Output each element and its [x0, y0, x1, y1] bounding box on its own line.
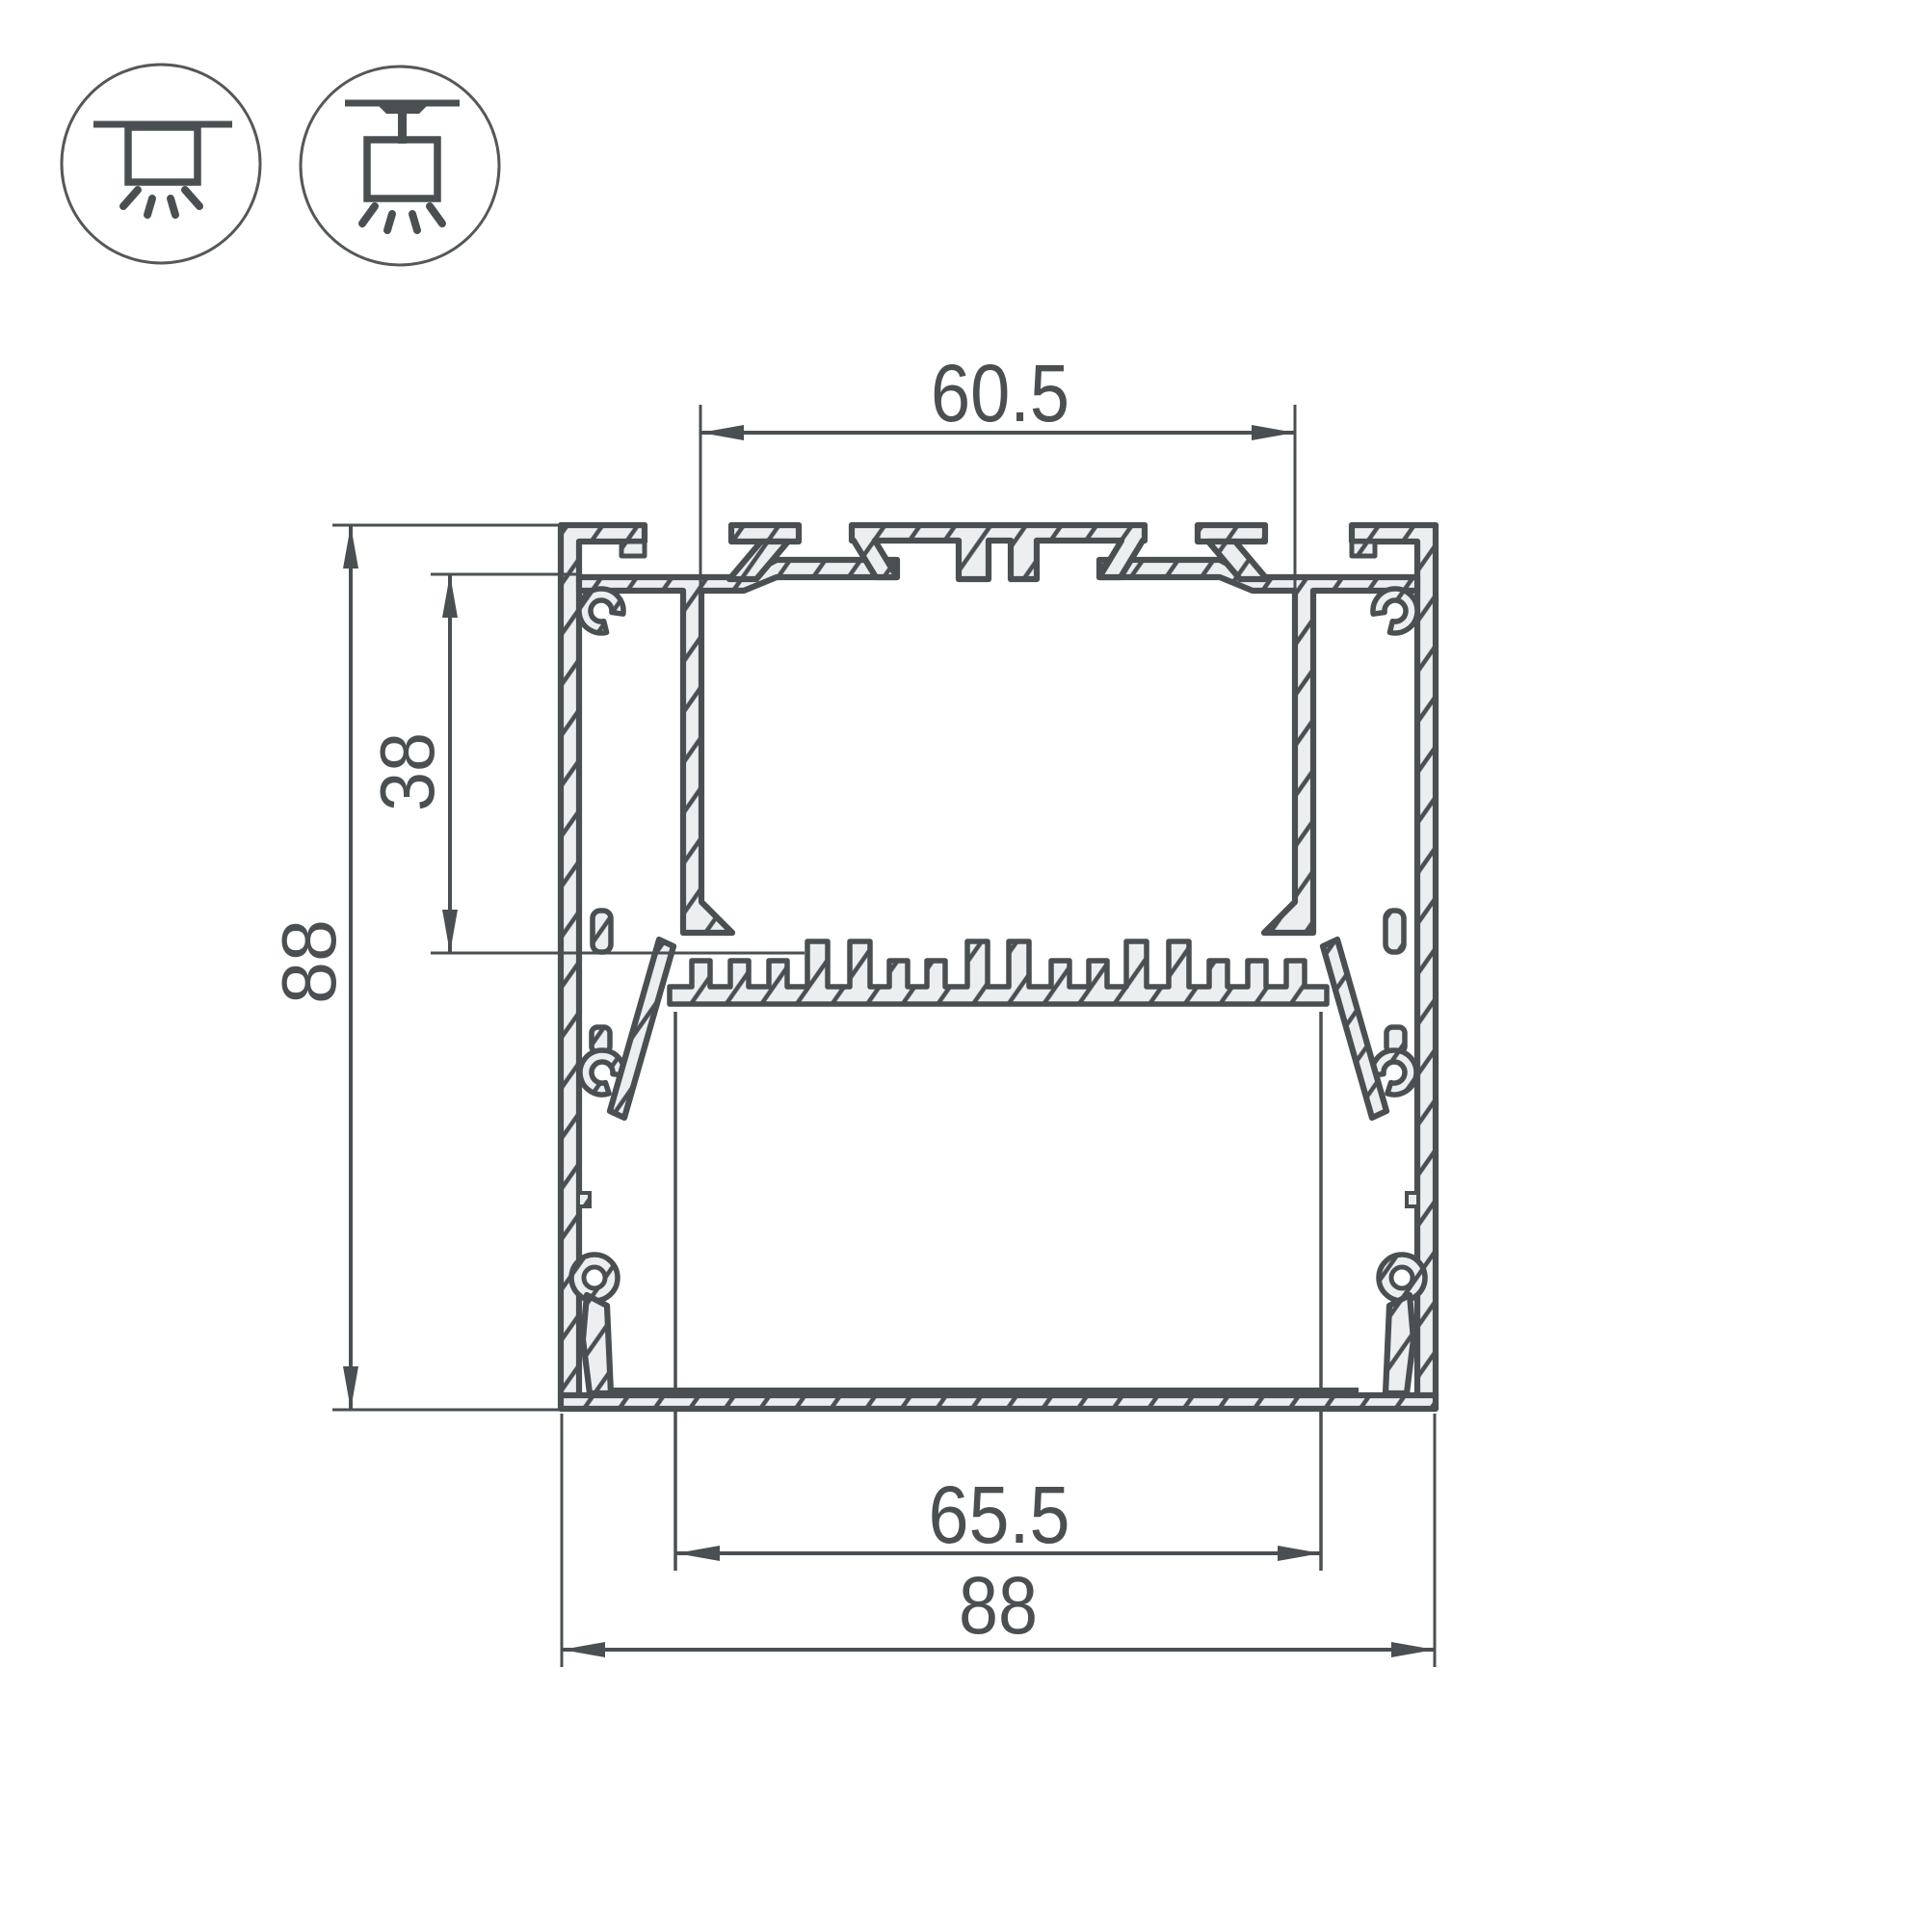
- svg-text:65.5: 65.5: [929, 1469, 1070, 1560]
- svg-text:38: 38: [364, 732, 450, 811]
- svg-text:60.5: 60.5: [931, 348, 1069, 438]
- svg-text:88: 88: [959, 1560, 1038, 1651]
- svg-text:88: 88: [266, 919, 352, 1004]
